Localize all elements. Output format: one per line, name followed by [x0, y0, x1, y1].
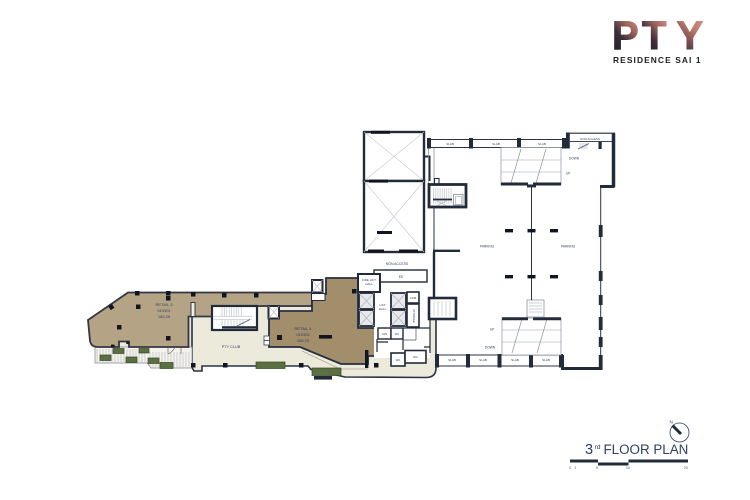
svg-text:SLAB: SLAB — [479, 358, 487, 362]
svg-text:NON ACCESS: NON ACCESS — [386, 262, 409, 266]
svg-text:010301: 010301 — [157, 308, 171, 313]
svg-text:HALL: HALL — [379, 307, 387, 311]
svg-text:RETAIL 3: RETAIL 3 — [156, 302, 174, 307]
svg-text:RESIDENCE SAI 1: RESIDENCE SAI 1 — [613, 55, 702, 65]
svg-text:P: P — [612, 14, 639, 58]
svg-text:SLAB: SLAB — [511, 358, 519, 362]
svg-text:5: 5 — [596, 466, 598, 470]
svg-text:SLAB: SLAB — [492, 142, 500, 146]
svg-text:HALL: HALL — [365, 282, 373, 286]
svg-text:0: 0 — [569, 466, 571, 470]
svg-text:JAN: JAN — [382, 332, 387, 336]
svg-text:FLOOR PLAN: FLOOR PLAN — [604, 442, 689, 457]
svg-text:DOWN: DOWN — [569, 157, 580, 161]
svg-text:10: 10 — [626, 466, 630, 470]
svg-text:rd: rd — [595, 444, 601, 451]
svg-text:WC: WC — [413, 355, 418, 359]
svg-text:RETAIL 4: RETAIL 4 — [295, 326, 313, 331]
svg-text:N: N — [670, 420, 673, 425]
svg-text:WC: WC — [395, 332, 400, 336]
svg-text:PTY CLUB: PTY CLUB — [222, 345, 241, 349]
svg-text:1: 1 — [575, 466, 577, 470]
svg-text:010302: 010302 — [296, 332, 310, 337]
svg-text:SLAB: SLAB — [538, 142, 546, 146]
svg-text:PARKING: PARKING — [561, 245, 576, 249]
svg-text:STORAGE: STORAGE — [412, 309, 416, 323]
svg-text:UP: UP — [490, 328, 494, 332]
svg-text:SLAB: SLAB — [446, 142, 454, 146]
svg-text:156.70: 156.70 — [297, 338, 310, 343]
svg-text:3: 3 — [585, 442, 593, 458]
svg-text:20: 20 — [684, 466, 688, 470]
svg-text:COM: COM — [410, 296, 417, 300]
svg-text:183.25: 183.25 — [158, 314, 171, 319]
svg-text:PARKING: PARKING — [480, 245, 495, 249]
svg-text:WC: WC — [396, 358, 401, 362]
svg-text:T: T — [642, 14, 666, 58]
svg-text:DOWN: DOWN — [485, 346, 496, 350]
svg-text:EE: EE — [399, 275, 404, 279]
svg-text:Y: Y — [677, 14, 704, 58]
svg-text:SLAB: SLAB — [542, 358, 550, 362]
svg-text:UP: UP — [566, 172, 570, 176]
svg-text:SLAB: SLAB — [448, 358, 456, 362]
svg-text:NON ACCESS: NON ACCESS — [580, 137, 600, 141]
